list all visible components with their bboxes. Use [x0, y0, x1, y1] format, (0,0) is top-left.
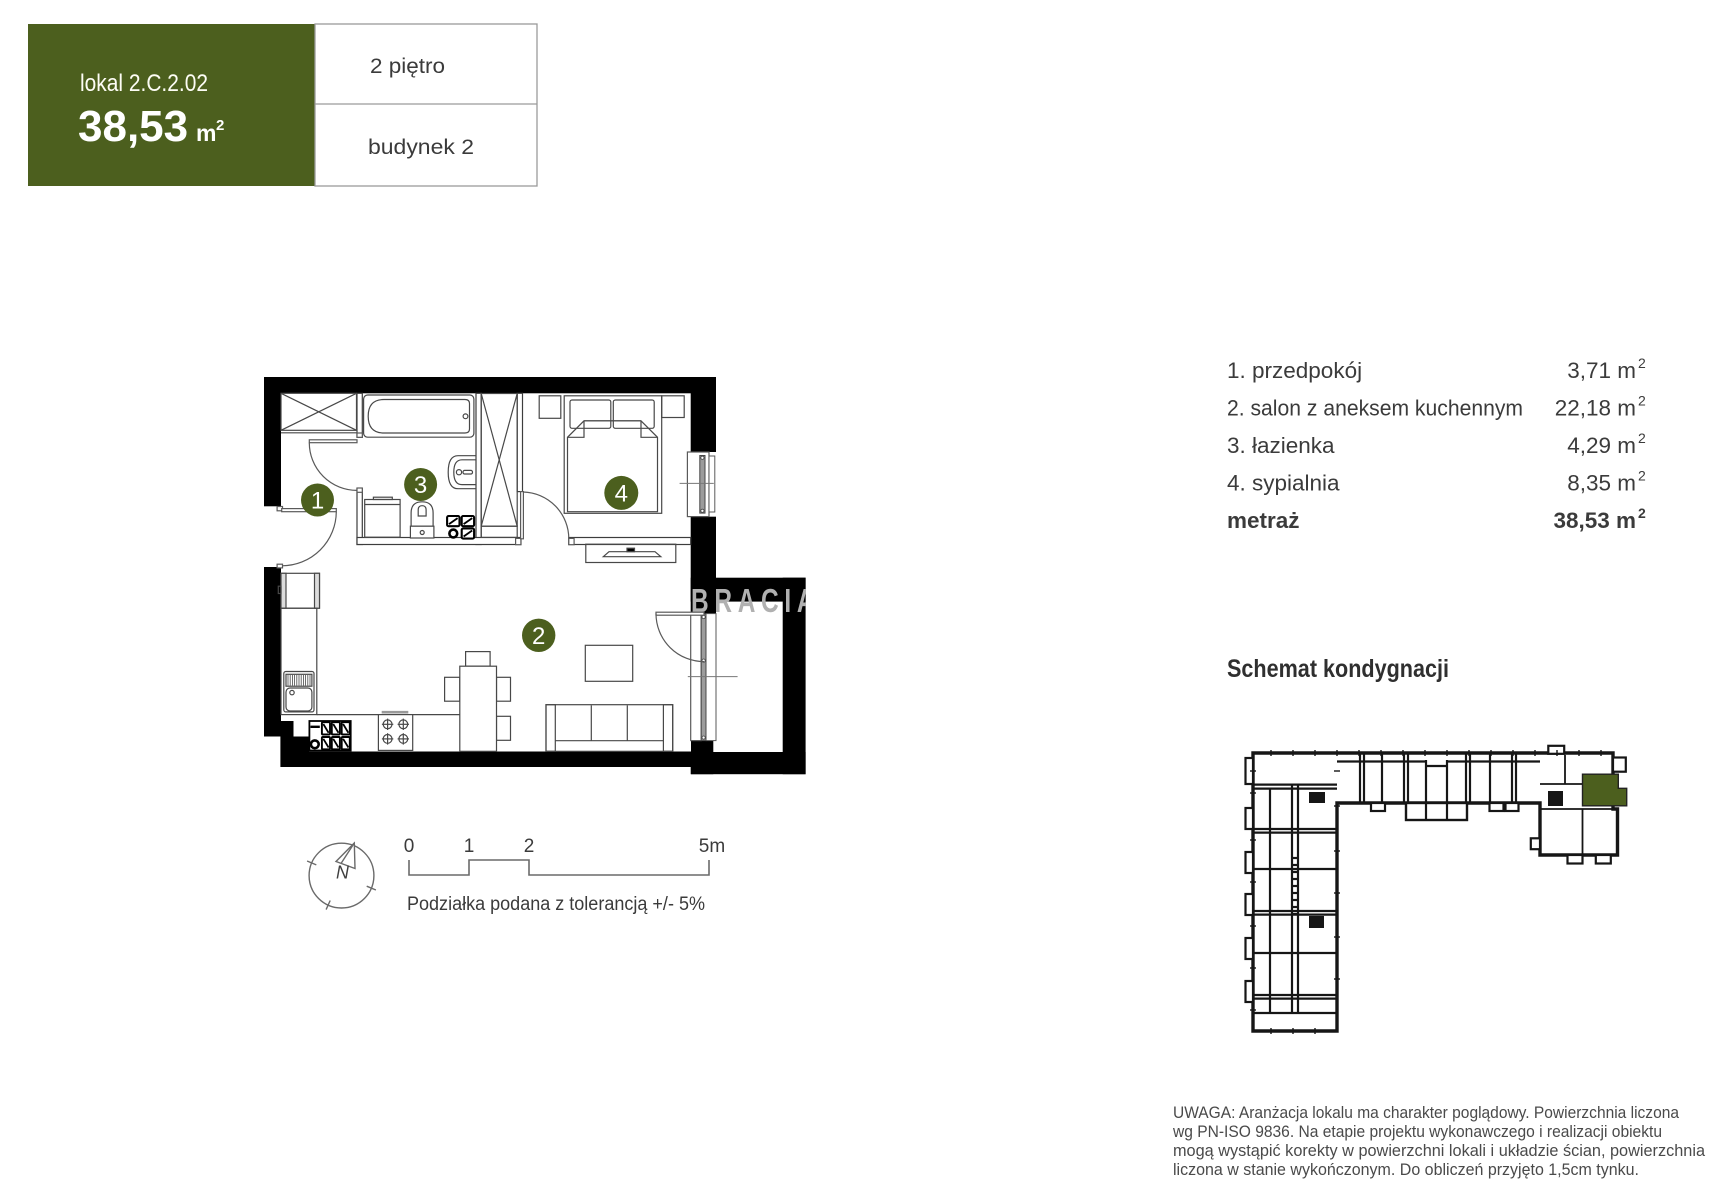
- svg-text:22,18 m: 22,18 m: [1555, 396, 1636, 421]
- svg-text:1. przedpokój: 1. przedpokój: [1227, 358, 1362, 383]
- svg-text:2: 2: [1638, 430, 1646, 446]
- svg-text:2: 2: [1638, 505, 1646, 521]
- svg-text:budynek 2: budynek 2: [368, 136, 474, 159]
- svg-text:UWAGA: Aranżacja lokalu ma cha: UWAGA: Aranżacja lokalu ma charakter pog…: [1173, 1104, 1680, 1122]
- svg-text:lokal 2.C.2.02: lokal 2.C.2.02: [80, 70, 208, 97]
- svg-text:4. sypialnia: 4. sypialnia: [1227, 471, 1340, 496]
- svg-text:2. salon z aneksem kuchennym: 2. salon z aneksem kuchennym: [1227, 396, 1523, 421]
- svg-text:m: m: [196, 120, 216, 146]
- svg-text:2: 2: [524, 836, 535, 857]
- svg-text:4: 4: [615, 480, 628, 507]
- svg-text:0: 0: [404, 836, 415, 857]
- svg-text:wg PN-ISO 9836. Na etapie proj: wg PN-ISO 9836. Na etapie projektu wykon…: [1172, 1123, 1662, 1141]
- svg-text:2 piętro: 2 piętro: [370, 55, 445, 78]
- svg-text:38,53: 38,53: [78, 102, 188, 151]
- svg-text:N: N: [336, 863, 350, 883]
- svg-text:2: 2: [1638, 355, 1646, 371]
- svg-text:1: 1: [464, 836, 475, 857]
- svg-text:2: 2: [1638, 393, 1646, 409]
- svg-text:2: 2: [216, 117, 224, 134]
- svg-text:2: 2: [1638, 468, 1646, 484]
- svg-text:4,29 m: 4,29 m: [1567, 433, 1636, 458]
- svg-text:3: 3: [414, 472, 427, 499]
- svg-text:38,53 m: 38,53 m: [1553, 508, 1636, 533]
- svg-text:Podziałka podana z tolerancją: Podziałka podana z tolerancją +/- 5%: [407, 894, 705, 915]
- svg-text:3. łazienka: 3. łazienka: [1227, 433, 1335, 458]
- svg-text:liczona w stanie wykończonym.: liczona w stanie wykończonym. Do oblicze…: [1173, 1161, 1639, 1179]
- svg-text:1: 1: [311, 488, 324, 515]
- svg-text:Schemat kondygnacji: Schemat kondygnacji: [1227, 655, 1449, 683]
- svg-text:metraż: metraż: [1227, 508, 1300, 533]
- svg-text:mogą wystąpić korekty w powier: mogą wystąpić korekty w powierzchni loka…: [1173, 1142, 1706, 1160]
- svg-text:3,71 m: 3,71 m: [1567, 358, 1636, 383]
- svg-text:8,35 m: 8,35 m: [1567, 471, 1636, 496]
- svg-text:2: 2: [532, 623, 545, 650]
- svg-text:5m: 5m: [699, 836, 725, 857]
